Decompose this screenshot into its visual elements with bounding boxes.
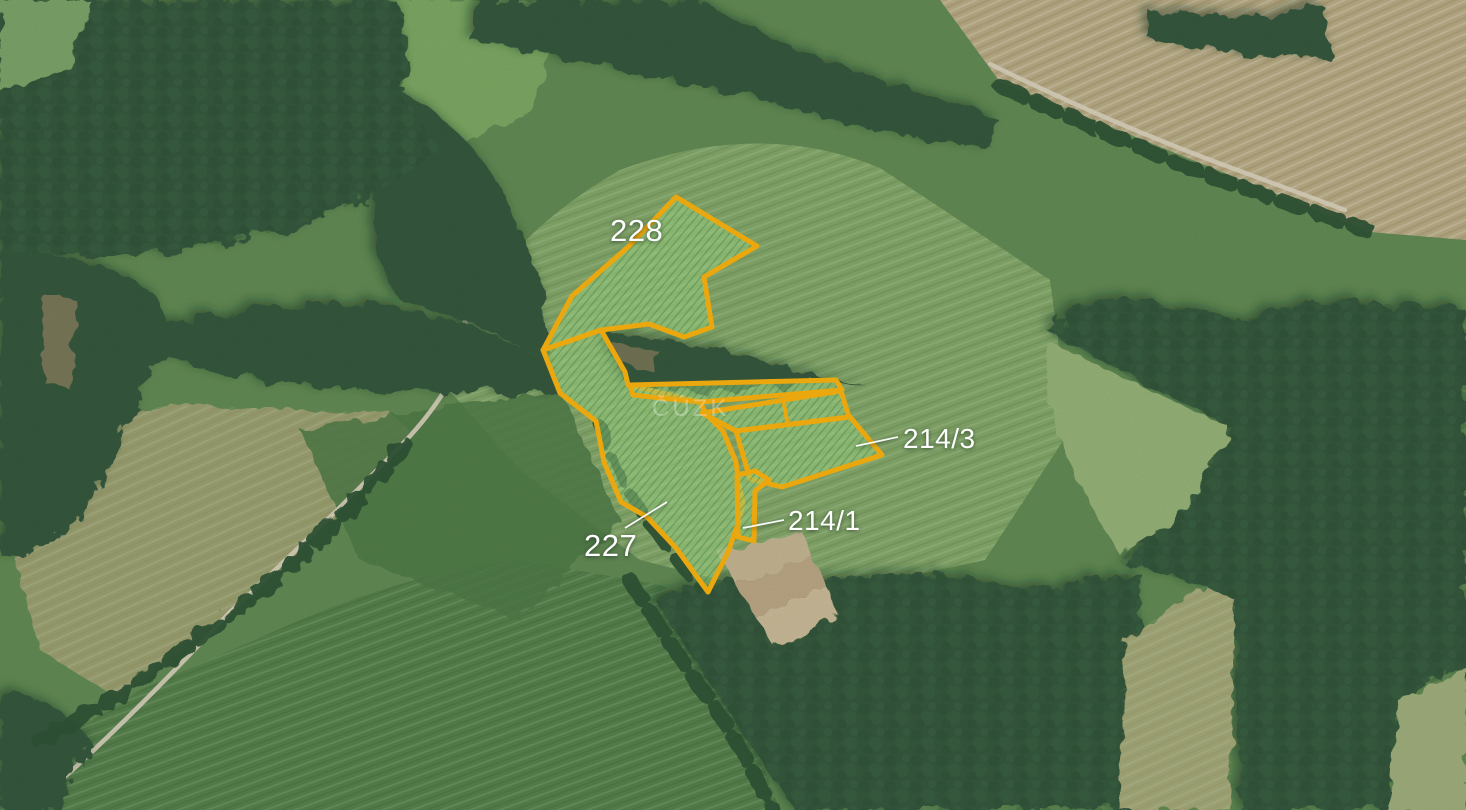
- map-viewport: ČÚZK 228 227 214/3 214/1: [0, 0, 1466, 810]
- aerial-map-canvas[interactable]: ČÚZK 228 227 214/3 214/1: [0, 0, 1466, 810]
- parcel-228-label: 228: [610, 213, 663, 248]
- aerial-imagery: [0, 0, 1466, 810]
- parcel-214-3-label: 214/3: [903, 423, 976, 454]
- cuzk-watermark: ČÚZK: [652, 394, 729, 422]
- parcel-227-label: 227: [584, 528, 637, 563]
- parcel-214-1-label: 214/1: [788, 505, 861, 536]
